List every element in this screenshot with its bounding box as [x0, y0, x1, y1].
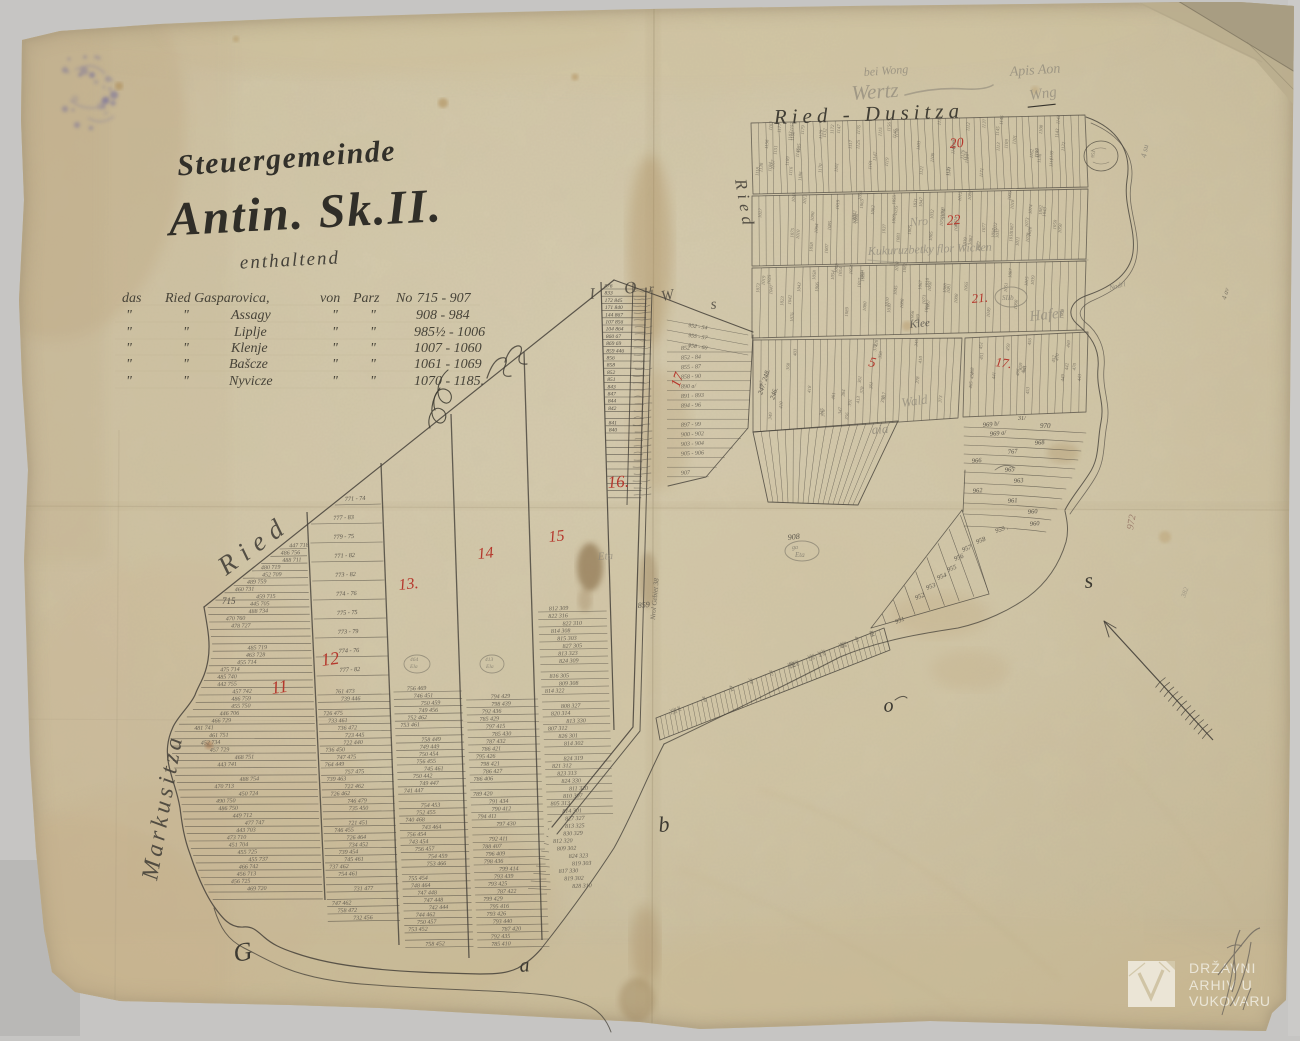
svg-text:749 447: 749 447: [419, 780, 440, 788]
svg-text:11: 11: [270, 676, 289, 698]
svg-text:807 312: 807 312: [548, 726, 568, 733]
svg-text:446 706: 446 706: [220, 710, 240, 718]
svg-text:822 316: 822 316: [548, 613, 568, 620]
svg-text:391: 391: [848, 399, 854, 407]
svg-text:1116: 1116: [789, 166, 795, 176]
svg-text:378: 378: [860, 386, 866, 394]
svg-text:485 719: 485 719: [248, 644, 268, 652]
svg-text:841: 841: [609, 419, 618, 426]
svg-text:aia: aia: [871, 421, 889, 437]
svg-text:908 - 984: 908 - 984: [416, 308, 470, 323]
svg-text:1090: 1090: [811, 211, 817, 222]
svg-text:771 - 74: 771 - 74: [345, 495, 366, 503]
svg-text:442: 442: [1065, 362, 1071, 370]
svg-text:1082: 1082: [871, 205, 877, 216]
svg-text:824 319: 824 319: [564, 755, 584, 763]
svg-text:": ": [183, 325, 189, 340]
svg-text:20: 20: [949, 136, 964, 152]
svg-text:ARHIV U: ARHIV U: [1189, 977, 1253, 993]
svg-text:1007 - 1060: 1007 - 1060: [414, 341, 482, 356]
svg-text:747 448: 747 448: [424, 897, 444, 905]
svg-text:1179: 1179: [801, 125, 807, 135]
svg-text:758 452: 758 452: [425, 940, 445, 948]
svg-text:787 420: 787 420: [501, 925, 521, 933]
svg-text:Parz: Parz: [352, 291, 380, 306]
svg-text:786 406: 786 406: [473, 775, 493, 783]
svg-text:469 720: 469 720: [247, 885, 267, 893]
svg-text:736 472: 736 472: [337, 724, 357, 732]
svg-text:811 320: 811 320: [569, 786, 588, 793]
svg-text:1085: 1085: [828, 220, 834, 231]
svg-text:1125: 1125: [856, 139, 862, 149]
svg-text:739 446: 739 446: [341, 695, 361, 703]
svg-text:726 464: 726 464: [346, 834, 366, 842]
svg-text:453: 453: [1026, 386, 1032, 394]
svg-text:731 477: 731 477: [354, 885, 375, 893]
svg-text:1073: 1073: [756, 282, 762, 293]
svg-text:907: 907: [681, 470, 691, 477]
svg-text:O: O: [623, 277, 638, 298]
svg-text:1057: 1057: [991, 228, 997, 239]
svg-text:488 754: 488 754: [239, 775, 259, 783]
svg-text:754 459: 754 459: [428, 853, 448, 861]
svg-text:819 302: 819 302: [564, 876, 584, 883]
svg-text:456 713: 456 713: [237, 870, 257, 878]
svg-text:785 430: 785 430: [492, 730, 512, 738]
svg-text:814 302: 814 302: [564, 740, 584, 748]
svg-text:799 429: 799 429: [483, 895, 503, 903]
svg-text:1107: 1107: [1035, 148, 1041, 158]
svg-text:777 - 82: 777 - 82: [339, 666, 360, 674]
svg-text:852 - 84: 852 - 84: [681, 354, 701, 362]
svg-text:1186: 1186: [798, 171, 804, 181]
svg-text:451: 451: [979, 342, 985, 350]
svg-text:1073: 1073: [1025, 217, 1031, 228]
svg-text:373: 373: [939, 395, 945, 403]
svg-text:1058: 1058: [812, 270, 818, 281]
svg-text:1007: 1007: [825, 243, 831, 254]
svg-text:": ": [332, 325, 338, 340]
svg-text:387: 387: [759, 380, 765, 388]
svg-text:746 479: 746 479: [347, 797, 367, 805]
svg-text:771 - 82: 771 - 82: [334, 552, 355, 560]
svg-text:847: 847: [608, 391, 617, 398]
svg-text:962: 962: [972, 487, 983, 495]
svg-text:480 719: 480 719: [261, 564, 281, 572]
svg-text:908: 908: [787, 532, 800, 542]
svg-text:401: 401: [832, 392, 838, 400]
svg-text:107 856: 107 856: [605, 320, 623, 326]
svg-text:767: 767: [1007, 448, 1018, 456]
svg-text:812 320: 812 320: [553, 838, 573, 845]
svg-text:851: 851: [607, 377, 616, 383]
svg-text:856: 856: [607, 356, 616, 362]
svg-text:810 307: 810 307: [563, 793, 584, 800]
svg-text:13.: 13.: [398, 575, 420, 594]
svg-text:789 420: 789 420: [473, 790, 493, 798]
svg-text:1013: 1013: [803, 194, 809, 205]
svg-text:796 409: 796 409: [486, 850, 506, 858]
svg-text:827 327: 827 327: [565, 816, 586, 823]
svg-text:451: 451: [980, 352, 986, 360]
svg-text:773 - 82: 773 - 82: [335, 571, 356, 579]
svg-text:": ": [332, 357, 338, 372]
svg-text:786 427: 786 427: [483, 768, 504, 776]
svg-text:1074: 1074: [1029, 204, 1035, 215]
svg-text:750 442: 750 442: [413, 772, 433, 780]
svg-text:747 475: 747 475: [337, 754, 357, 762]
svg-text:a: a: [519, 954, 531, 977]
svg-text:1117: 1117: [849, 139, 855, 149]
svg-text:No: No: [395, 291, 412, 306]
svg-text:735 450: 735 450: [349, 805, 369, 813]
svg-text:1010: 1010: [796, 229, 802, 240]
svg-text:15: 15: [548, 527, 566, 546]
svg-text:1065: 1065: [860, 198, 866, 209]
svg-text:797 415: 797 415: [486, 723, 506, 731]
svg-text:843: 843: [607, 383, 616, 390]
svg-text:470: 470: [1055, 353, 1061, 361]
svg-text:1054: 1054: [839, 266, 845, 277]
svg-text:1089: 1089: [845, 306, 851, 317]
svg-text:1169: 1169: [786, 156, 792, 166]
svg-text:1157: 1157: [790, 121, 796, 131]
svg-text:463 728: 463 728: [246, 651, 266, 659]
svg-text:485 740: 485 740: [217, 673, 237, 681]
svg-text:441: 441: [992, 372, 998, 380]
svg-text:452 709: 452 709: [262, 571, 282, 579]
svg-text:486 756: 486 756: [281, 549, 301, 557]
svg-text:1058: 1058: [809, 241, 815, 252]
svg-text:794 429: 794 429: [491, 693, 511, 701]
svg-text:": ": [370, 341, 376, 356]
svg-text:749 449: 749 449: [420, 743, 440, 751]
svg-text:799 414: 799 414: [499, 865, 519, 873]
svg-text:787 422: 787 422: [497, 888, 517, 896]
svg-text:960: 960: [1027, 508, 1038, 516]
svg-text:824 330: 824 330: [561, 777, 581, 785]
svg-text:733 461: 733 461: [328, 717, 348, 725]
svg-text:469: 469: [1067, 340, 1073, 348]
svg-text:1006: 1006: [815, 281, 821, 292]
svg-text:": ": [183, 374, 189, 389]
svg-text:Nyvicze: Nyvicze: [228, 374, 273, 389]
svg-text:384: 384: [842, 389, 848, 397]
svg-text:1113: 1113: [996, 142, 1002, 152]
svg-text:859: 859: [637, 600, 650, 610]
svg-text:1070 - 1185.: 1070 - 1185.: [414, 374, 484, 389]
svg-text:171 840: 171 840: [605, 304, 623, 311]
svg-text:1087: 1087: [1010, 222, 1016, 233]
svg-text:1027: 1027: [758, 208, 764, 219]
svg-text:486 750: 486 750: [218, 805, 238, 813]
svg-text:345: 345: [915, 339, 921, 347]
svg-text:": ": [126, 357, 132, 372]
svg-text:451 704: 451 704: [229, 841, 249, 849]
svg-text:1106: 1106: [930, 152, 936, 162]
svg-text:758 449: 758 449: [421, 736, 441, 744]
svg-text:452 734: 452 734: [201, 739, 221, 747]
svg-text:814 308: 814 308: [551, 627, 571, 635]
svg-text:Ela: Ela: [409, 664, 418, 670]
svg-text:1115: 1115: [878, 127, 884, 137]
svg-text:792 436: 792 436: [482, 708, 502, 716]
svg-text:": ": [370, 374, 376, 389]
svg-text:1129: 1129: [819, 129, 825, 139]
svg-text:821 312: 821 312: [552, 763, 572, 770]
svg-text:1119: 1119: [885, 157, 891, 167]
svg-text:1087: 1087: [1008, 268, 1014, 279]
svg-text:1137: 1137: [982, 118, 988, 128]
svg-text:833: 833: [604, 291, 613, 297]
svg-text:787 432: 787 432: [486, 738, 506, 746]
svg-text:774 - 76: 774 - 76: [339, 647, 361, 655]
svg-text:455 737: 455 737: [248, 856, 269, 864]
svg-text:349: 349: [769, 412, 775, 420]
svg-text:468 751: 468 751: [235, 754, 255, 762]
svg-text:793 439: 793 439: [494, 873, 514, 881]
svg-text:792 435: 792 435: [491, 933, 511, 941]
svg-text:798 436: 798 436: [484, 858, 504, 866]
svg-text:378: 378: [916, 376, 922, 384]
svg-text:743 464: 743 464: [422, 824, 442, 832]
svg-text:1147: 1147: [837, 124, 843, 134]
svg-text:1146: 1146: [1000, 115, 1006, 125]
svg-text:": ": [370, 308, 376, 323]
svg-text:104 864: 104 864: [606, 326, 624, 333]
svg-text:1047: 1047: [769, 284, 775, 295]
svg-text:722 440: 722 440: [343, 739, 363, 747]
svg-text:1103: 1103: [917, 140, 923, 150]
svg-text:756 469: 756 469: [407, 685, 427, 693]
svg-text:905 - 906: 905 - 906: [681, 450, 704, 457]
svg-text:1055: 1055: [892, 194, 898, 205]
svg-text:443: 443: [1078, 373, 1084, 381]
svg-text:1019: 1019: [836, 199, 842, 210]
svg-text:1176: 1176: [857, 124, 863, 134]
svg-text:459: 459: [1019, 362, 1025, 370]
svg-text:816 305: 816 305: [549, 673, 569, 680]
svg-text:750 457: 750 457: [417, 918, 438, 926]
svg-text:791 434: 791 434: [489, 798, 509, 806]
svg-text:410: 410: [779, 401, 785, 409]
svg-text:809 308: 809 308: [559, 681, 579, 688]
svg-text:449: 449: [1061, 374, 1067, 382]
svg-text:750 459: 750 459: [421, 699, 441, 707]
svg-text:788 407: 788 407: [482, 843, 503, 851]
svg-text:443 741: 443 741: [217, 761, 237, 769]
svg-text:753 461: 753 461: [400, 721, 420, 729]
svg-text:746 455: 746 455: [334, 827, 354, 835]
svg-text:737 462: 737 462: [329, 863, 349, 871]
svg-text:792 411: 792 411: [489, 835, 508, 843]
svg-text:813 323: 813 323: [558, 651, 578, 658]
svg-text:1080: 1080: [863, 301, 869, 312]
svg-text:1025: 1025: [767, 274, 773, 285]
svg-text:775 - 75: 775 - 75: [337, 609, 358, 617]
svg-text:742 444: 742 444: [429, 904, 449, 912]
svg-text:795 426: 795 426: [476, 753, 496, 761]
svg-text:das: das: [122, 291, 142, 306]
svg-text:": ": [332, 374, 338, 389]
svg-text:o: o: [883, 694, 895, 717]
svg-text:": ": [183, 357, 189, 372]
svg-text:876: 876: [604, 284, 613, 290]
svg-text:": ": [370, 357, 376, 372]
svg-text:b: b: [657, 811, 670, 837]
svg-text:410: 410: [919, 355, 925, 363]
svg-text:1109: 1109: [1005, 139, 1011, 149]
svg-text:1018: 1018: [1010, 199, 1016, 210]
svg-text:852: 852: [607, 370, 616, 376]
svg-text:1081: 1081: [947, 284, 953, 294]
svg-text:442 755: 442 755: [217, 681, 237, 689]
svg-text:": ": [332, 308, 338, 323]
svg-text:824 309: 824 309: [559, 657, 579, 665]
svg-text:459: 459: [1006, 343, 1012, 351]
svg-text:970: 970: [1040, 422, 1051, 430]
svg-text:1171: 1171: [980, 168, 986, 178]
svg-text:490 750: 490 750: [216, 797, 236, 805]
svg-text:465: 465: [969, 381, 975, 389]
svg-text:726 462: 726 462: [330, 790, 350, 798]
svg-text:447 718: 447 718: [289, 542, 309, 550]
svg-text:1178: 1178: [895, 128, 901, 138]
svg-text:756 455: 756 455: [416, 758, 436, 766]
svg-text:172 845: 172 845: [605, 297, 623, 304]
svg-text:Eta: Eta: [794, 551, 805, 559]
svg-text:966: 966: [971, 457, 982, 465]
svg-text:1045: 1045: [894, 285, 900, 296]
svg-text:1067: 1067: [918, 280, 924, 291]
svg-text:1037: 1037: [882, 223, 888, 234]
svg-text:r: r: [649, 281, 654, 295]
svg-text:1041: 1041: [792, 192, 798, 202]
svg-text:1042: 1042: [788, 294, 794, 305]
svg-text:SIIb: SIIb: [1002, 294, 1014, 302]
svg-text:Nro: Nro: [908, 214, 928, 229]
svg-text:1077: 1077: [982, 222, 988, 233]
svg-text:356: 356: [879, 351, 885, 359]
svg-text:12: 12: [320, 648, 341, 670]
svg-text:368: 368: [786, 362, 792, 370]
svg-text:1080: 1080: [968, 190, 974, 201]
svg-text:891 - 893: 891 - 893: [681, 393, 704, 400]
svg-text:459 715: 459 715: [256, 593, 276, 601]
svg-text:855 - 87: 855 - 87: [681, 364, 702, 371]
svg-text:1121: 1121: [920, 166, 926, 176]
svg-text:21.: 21.: [971, 290, 988, 306]
svg-text:1143: 1143: [1055, 128, 1061, 138]
svg-text:1078: 1078: [1026, 232, 1032, 243]
svg-text:1170: 1170: [818, 163, 824, 173]
svg-text:798 421: 798 421: [480, 760, 500, 768]
svg-text:741 447: 741 447: [404, 787, 425, 795]
svg-text:Bašcze: Bašcze: [229, 357, 268, 372]
svg-text:745 461: 745 461: [424, 765, 444, 773]
svg-text:753 452: 753 452: [408, 926, 428, 934]
svg-text:820 314: 820 314: [551, 710, 571, 718]
svg-text:755 454: 755 454: [408, 875, 428, 883]
svg-text:1015: 1015: [1025, 276, 1031, 287]
svg-text:481 741: 481 741: [194, 724, 214, 732]
svg-text:466 729: 466 729: [211, 717, 231, 725]
svg-text:144 867: 144 867: [605, 311, 623, 318]
svg-text:827 305: 827 305: [562, 643, 582, 650]
svg-text:1039: 1039: [1031, 275, 1037, 286]
svg-text:Klenje: Klenje: [230, 341, 268, 356]
svg-text:16.: 16.: [607, 472, 630, 492]
svg-text:985½ - 1006: 985½ - 1006: [414, 325, 485, 340]
svg-text:489 759: 489 759: [247, 578, 267, 586]
svg-text:758 472: 758 472: [337, 907, 357, 915]
svg-text:774 - 76: 774 - 76: [336, 590, 358, 598]
svg-text:": ": [183, 308, 189, 323]
svg-text:1012: 1012: [958, 191, 964, 202]
svg-text:1145: 1145: [996, 126, 1002, 136]
svg-text:750 454: 750 454: [419, 751, 439, 759]
svg-text:477 747: 477 747: [245, 819, 266, 827]
svg-text:734 452: 734 452: [349, 841, 369, 849]
svg-text:757 475: 757 475: [345, 768, 365, 776]
svg-text:": ": [332, 341, 338, 356]
svg-text:715: 715: [222, 596, 236, 606]
svg-text:819 303: 819 303: [572, 861, 592, 868]
svg-text:1064: 1064: [925, 302, 931, 313]
svg-text:808 327: 808 327: [561, 703, 582, 710]
svg-text:466 742: 466 742: [239, 863, 259, 871]
svg-text:VUKOVARU: VUKOVARU: [1189, 993, 1271, 1009]
svg-text:961: 961: [1007, 497, 1017, 505]
svg-text:840: 840: [609, 427, 618, 434]
svg-text:779 - 75: 779 - 75: [333, 533, 354, 541]
svg-text:1135: 1135: [946, 166, 952, 176]
svg-text:723 445: 723 445: [345, 732, 365, 740]
svg-text:456: 456: [1028, 337, 1034, 345]
svg-text:1122: 1122: [1061, 141, 1067, 151]
svg-text:793 440: 793 440: [493, 918, 513, 926]
svg-text:752 462: 752 462: [407, 714, 427, 722]
svg-text:443 703: 443 703: [236, 827, 256, 835]
svg-text:1076: 1076: [790, 312, 796, 323]
svg-text:817 330: 817 330: [559, 868, 579, 875]
svg-text:809 302: 809 302: [557, 846, 577, 853]
svg-text:790 412: 790 412: [492, 805, 512, 813]
svg-text:747 462: 747 462: [332, 900, 352, 908]
svg-text:785 410: 785 410: [491, 940, 511, 948]
svg-text:Eta: Eta: [596, 550, 614, 563]
svg-text:1050: 1050: [1058, 223, 1064, 234]
svg-text:488 734: 488 734: [248, 608, 268, 616]
svg-text:746 451: 746 451: [414, 692, 434, 700]
svg-text:470 760: 470 760: [226, 615, 246, 623]
svg-text:798 439: 798 439: [491, 700, 511, 708]
svg-text:844: 844: [608, 398, 617, 405]
svg-text:745 461: 745 461: [344, 856, 364, 864]
svg-text:903 - 904: 903 - 904: [681, 440, 704, 448]
svg-text:1156: 1156: [887, 122, 893, 132]
svg-text:777 - 83: 777 - 83: [333, 514, 354, 522]
svg-text:740 468: 740 468: [405, 816, 425, 824]
svg-text:478 727: 478 727: [231, 622, 252, 630]
svg-text:1064: 1064: [815, 223, 821, 234]
svg-text:418: 418: [808, 385, 814, 393]
svg-text:488 711: 488 711: [282, 556, 301, 564]
svg-text:794 411: 794 411: [477, 813, 496, 821]
svg-text:756 454: 756 454: [407, 831, 427, 839]
svg-text:1010: 1010: [885, 297, 891, 308]
svg-text:1053: 1053: [849, 264, 855, 275]
